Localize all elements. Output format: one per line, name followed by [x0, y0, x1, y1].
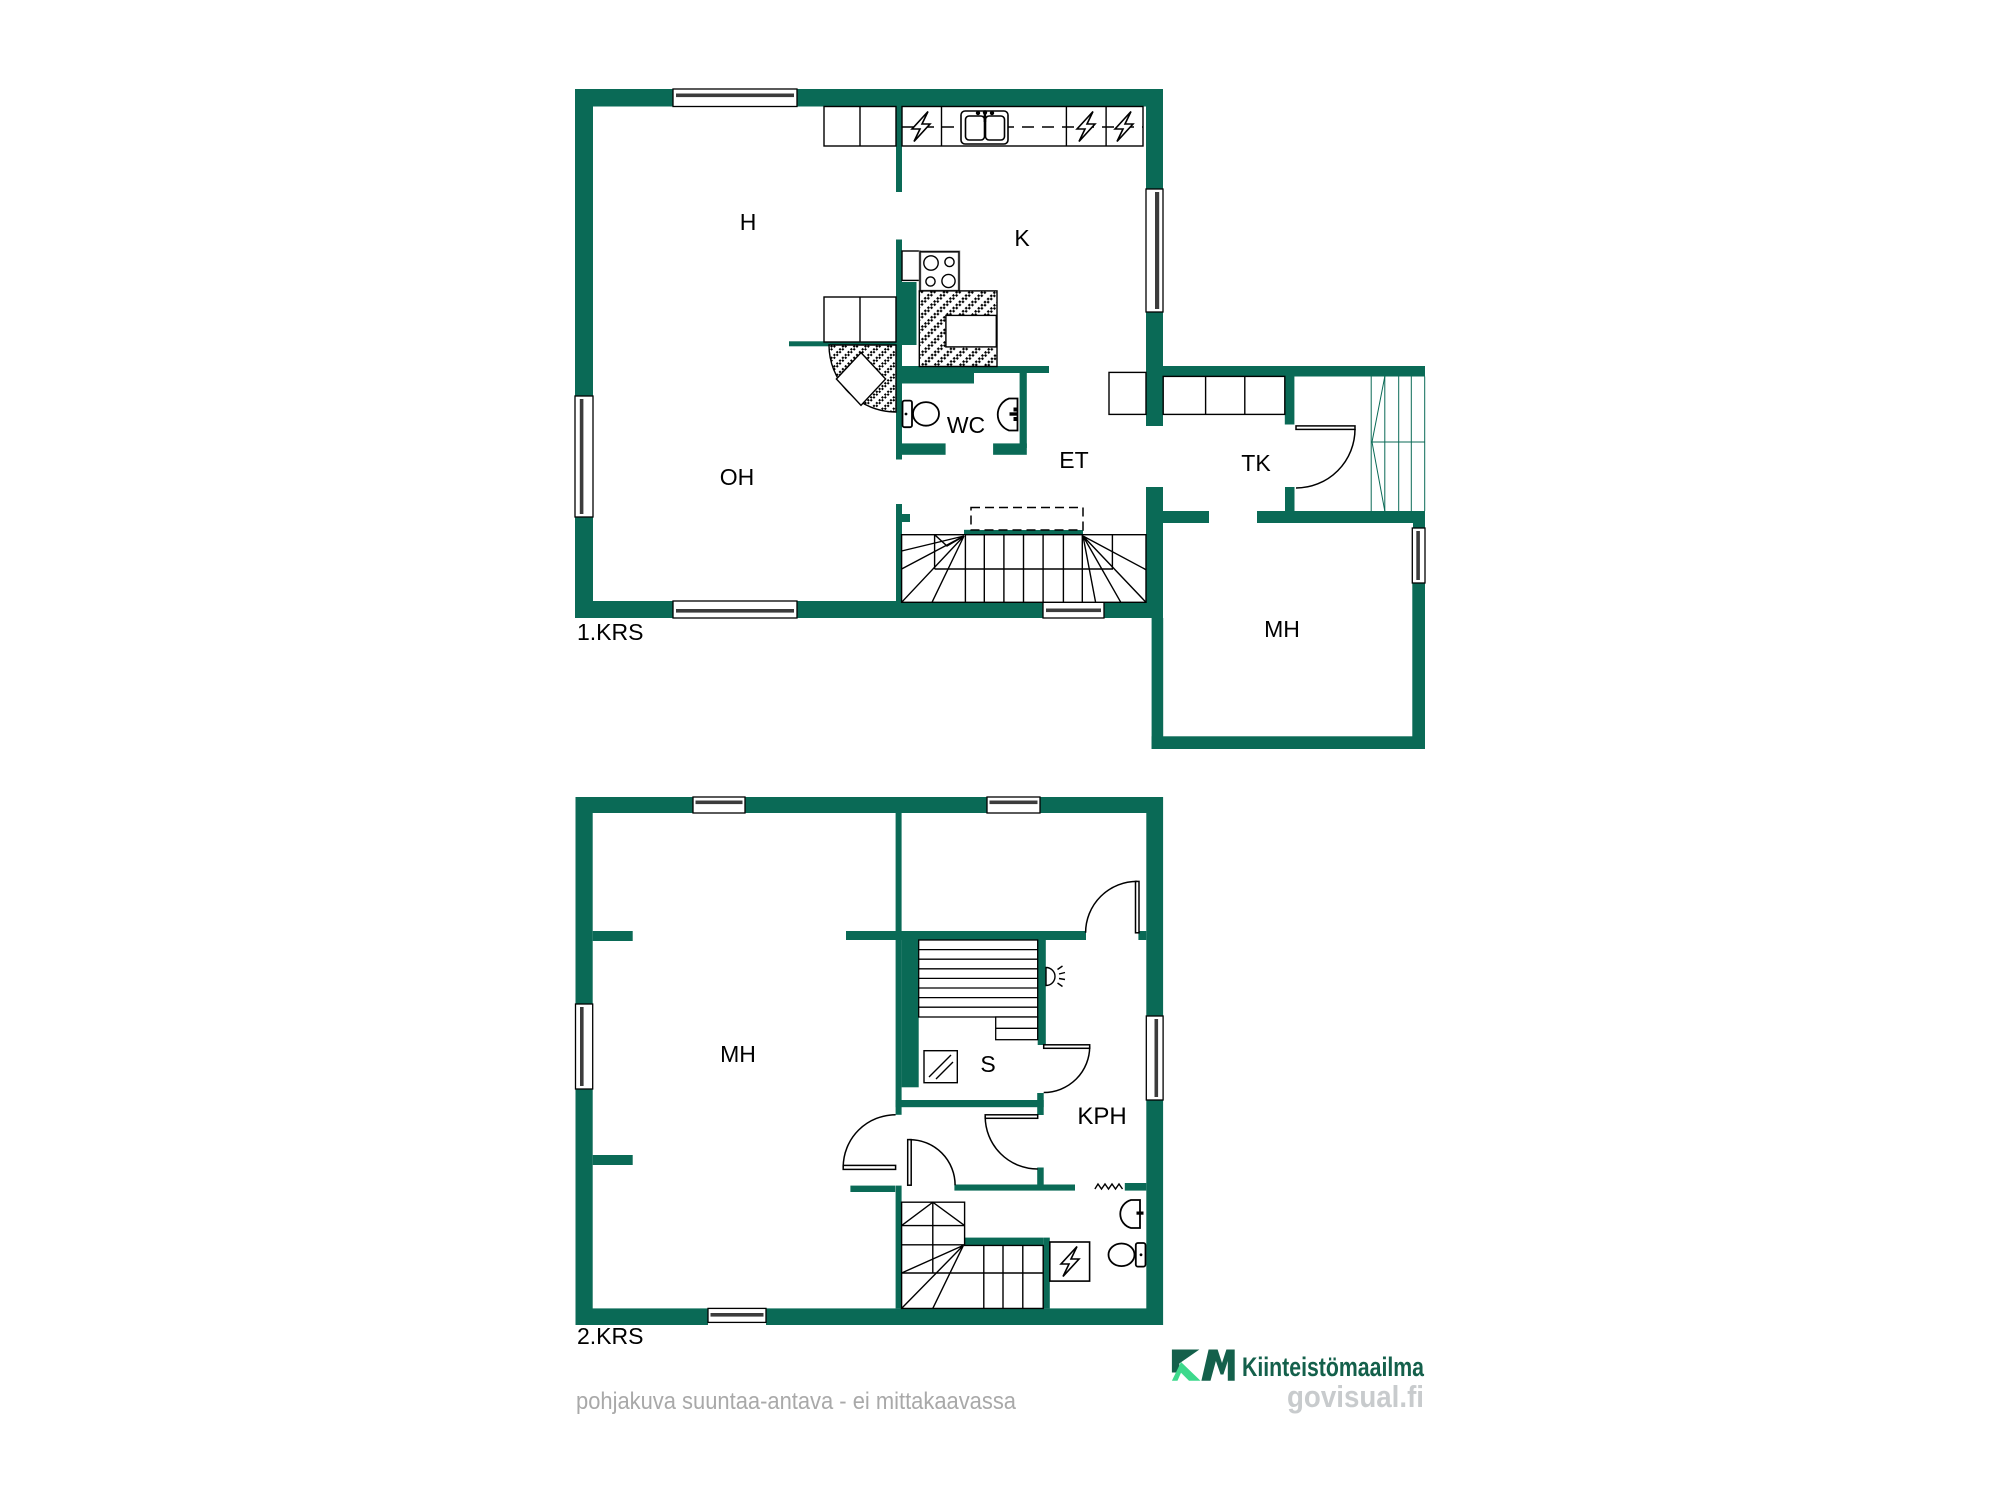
svg-text:H: H — [740, 209, 757, 235]
svg-text:S: S — [980, 1051, 995, 1077]
svg-text:MH: MH — [720, 1041, 756, 1067]
svg-text:OH: OH — [720, 464, 755, 490]
svg-text:WC: WC — [947, 412, 985, 438]
svg-text:2.KRS: 2.KRS — [577, 1323, 643, 1349]
svg-text:K: K — [1014, 225, 1030, 251]
svg-text:TK: TK — [1241, 450, 1271, 476]
svg-text:ET: ET — [1059, 447, 1088, 473]
svg-text:Kiinteistömaailma: Kiinteistömaailma — [1242, 1352, 1425, 1382]
svg-text:KPH: KPH — [1077, 1103, 1126, 1130]
svg-text:govisual.fi: govisual.fi — [1287, 1379, 1424, 1414]
svg-text:pohjakuva suuntaa-antava - ei: pohjakuva suuntaa-antava - ei mittakaava… — [576, 1388, 1017, 1415]
svg-text:MH: MH — [1264, 616, 1300, 642]
svg-text:1.KRS: 1.KRS — [577, 619, 643, 645]
